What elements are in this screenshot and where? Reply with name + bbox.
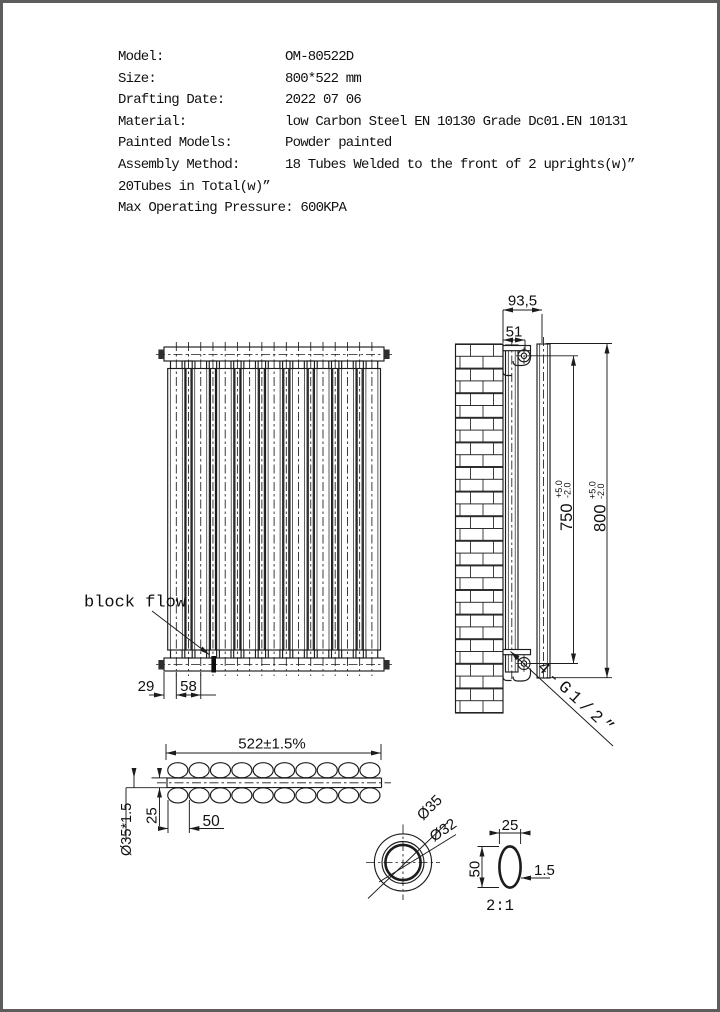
dim-height: 800 +5.0 -2.0 [588, 481, 610, 532]
svg-text:750: 750 [558, 503, 576, 531]
svg-text:Ø35*1.5: Ø35*1.5 [119, 803, 135, 856]
svg-text:25: 25 [144, 807, 161, 824]
oval-profile [499, 846, 520, 887]
side-view: 93,5 51 750 +5.0 -2.0 800 +5.0 -2.0 4-G1… [456, 293, 620, 747]
dim-edge-offset: 29 [138, 678, 155, 695]
dim-width: 522±1.5% [238, 736, 305, 753]
drawing-sheet: Model:OM-80522D Size:800*522 mm Drafting… [0, 0, 720, 1012]
detail-oval: 25 50 1.5 2:1 [467, 817, 555, 915]
dim-inner-dia: Ø32 [427, 815, 460, 845]
svg-text:Ø35: Ø35 [414, 792, 446, 824]
connection-label: 4-G1/2” [532, 658, 619, 740]
front-view: block flow 29 58 [84, 342, 392, 699]
tube-centerlines [176, 342, 372, 676]
inner-dia-leader [379, 835, 456, 883]
dim-oval-width: 25 [502, 817, 519, 834]
svg-text:Ø32: Ø32 [427, 815, 460, 845]
svg-text:4-G1/2”: 4-G1/2” [532, 658, 619, 740]
wall [456, 344, 504, 713]
dim-bracket-span: 750 +5.0 -2.0 [554, 480, 576, 531]
tube-ovals-top-row [168, 763, 380, 778]
dim-tube-pitch: 50 [203, 813, 221, 830]
dim-tube-spec: Ø35*1.5 [119, 803, 135, 856]
tube-ovals-bottom-row [168, 788, 380, 803]
detail-scale-label: 2:1 [486, 897, 514, 915]
dim-oval-wall: 1.5 [534, 862, 555, 879]
technical-drawing: block flow 29 58 [0, 0, 720, 1012]
dim-outer-dia: Ø35 [414, 792, 446, 824]
dim-depth: 93,5 [508, 293, 537, 310]
dim-wall-to-center: 51 [506, 324, 523, 341]
dim-tube-pitch: 58 [180, 678, 197, 695]
block-flow-label: block flow [84, 594, 187, 613]
bottom-view-dims [126, 744, 381, 840]
dim-oval-depth: 50 [467, 861, 484, 878]
block-flow-mark [211, 656, 216, 673]
detail-circle: Ø35 Ø32 [366, 792, 460, 900]
svg-text:-2.0: -2.0 [563, 482, 573, 498]
dim-row-offset: 25 [144, 807, 161, 824]
svg-text:800: 800 [592, 504, 610, 532]
bottom-view: 522±1.5% 25 Ø35*1.5 50 [119, 736, 391, 857]
svg-text:-2.0: -2.0 [596, 483, 606, 499]
svg-text:50: 50 [467, 861, 484, 878]
